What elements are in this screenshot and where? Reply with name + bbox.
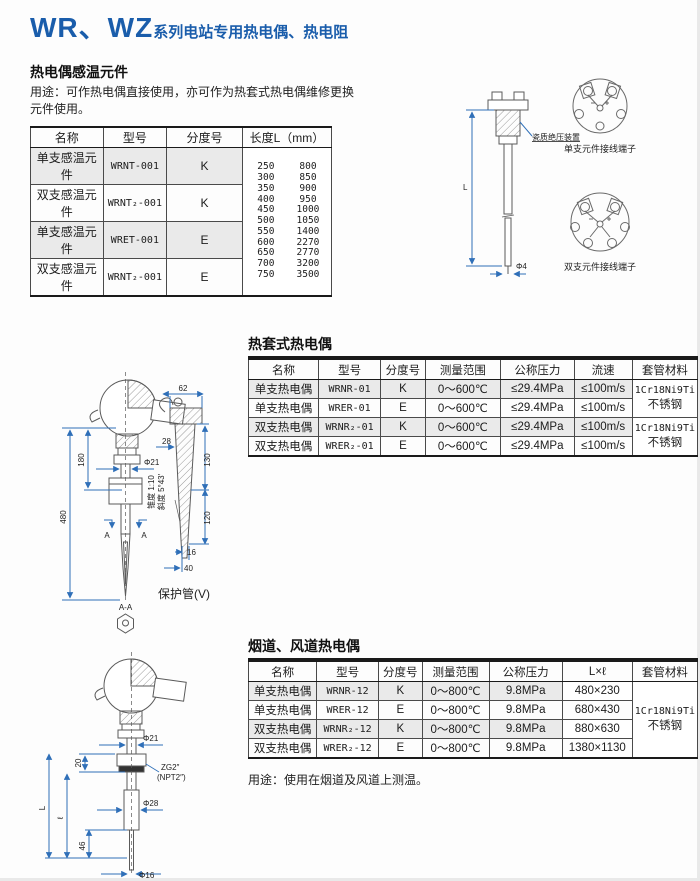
- series-code: WR、WZ: [30, 12, 153, 43]
- duct-thermocouple-diagram: Φ21 20 ZG2″ (NPT2″) L ℓ Φ28 46 Φ16: [35, 652, 240, 881]
- mark-AA: A-A: [119, 603, 133, 612]
- index-cell: K: [381, 380, 425, 399]
- index-cell: K: [379, 682, 422, 701]
- sheathed-thermocouple-table: 名称 型号 分度号 测量范围 公称压力 流速 套管材料 单支热电偶 WRNR-0…: [248, 358, 698, 457]
- table-row: 单支感温元件 WRNT-001 K 250800 300850 350900 4…: [31, 148, 332, 185]
- model-cell: WRNT₂-001: [103, 259, 167, 297]
- mark-A1: A: [104, 531, 110, 540]
- material-line2: 不锈钢: [635, 717, 695, 733]
- header-model: 型号: [319, 359, 381, 380]
- header-index: 分度号: [381, 359, 425, 380]
- name-cell: 单支热电偶: [249, 701, 317, 720]
- velocity-cell: ≤100m/s: [574, 380, 632, 399]
- header-model: 型号: [317, 661, 379, 682]
- range-cell: 0～600℃: [425, 418, 500, 437]
- header-size: L×ℓ: [562, 661, 632, 682]
- table-row: 双支热电偶 WRER₂-12 E 0～800℃ 9.8MPa 1380×1130: [249, 739, 698, 759]
- table-row: 单支热电偶 WRER-12 E 0～800℃ 9.8MPa 680×430: [249, 701, 698, 720]
- model-cell: WRNR-01: [319, 380, 381, 399]
- page-title: WR、WZ系列电站专用热电偶、热电阻: [30, 6, 348, 46]
- model-cell: WRNR₂-01: [319, 418, 381, 437]
- header-velocity: 流速: [574, 359, 632, 380]
- header-material: 套管材料: [632, 359, 697, 380]
- material-line1: 1Cr18Ni9Ti: [635, 706, 695, 717]
- dim-phi21: Φ21: [143, 734, 159, 743]
- range-cell: 0～600℃: [425, 437, 500, 457]
- index-cell: K: [381, 418, 425, 437]
- table-row: 双支热电偶 WRNR₂-01 K 0～600℃ ≤29.4MPa ≤100m/s…: [249, 418, 698, 437]
- model-cell: WRNR₂-12: [317, 720, 379, 739]
- material-line1: 1Cr18Ni9Ti: [635, 385, 695, 396]
- model-cell: WRER-01: [319, 399, 381, 418]
- name-cell: 单支感温元件: [31, 148, 104, 185]
- model-cell: WRNT₂-001: [103, 185, 167, 222]
- terminal-block-single: [573, 79, 627, 133]
- dim-phi28: Φ28: [143, 799, 159, 808]
- catalog-page: WR、WZ系列电站专用热电偶、热电阻 热电偶感温元件 用途：可作热电偶直接使用，…: [0, 0, 700, 881]
- section-detail: [118, 614, 134, 633]
- index-cell: E: [167, 222, 243, 259]
- duct-thermocouple-table: 名称 型号 分度号 测量范围 公称压力 L×ℓ 套管材料 单支热电偶 WRNR-…: [248, 660, 698, 759]
- range-cell: 0～800℃: [422, 720, 489, 739]
- velocity-cell: ≤100m/s: [574, 437, 632, 457]
- dim-28: 28: [162, 437, 171, 446]
- section-heading-sheathed: 热套式热电偶: [248, 334, 698, 358]
- header-pressure: 公称压力: [501, 359, 575, 380]
- dim-tip-label: Φ4: [516, 262, 527, 271]
- name-cell: 单支热电偶: [249, 380, 319, 399]
- index-cell: E: [381, 437, 425, 457]
- header-name: 名称: [249, 661, 317, 682]
- callout-line: [520, 122, 532, 136]
- terminal-block-double: [571, 193, 630, 251]
- dim-L-label: L: [463, 183, 468, 192]
- dim-46: 46: [78, 841, 87, 850]
- pressure-cell: ≤29.4MPa: [501, 437, 575, 457]
- duct-usage-note: 用途：使用在烟道及风道上测温。: [248, 771, 698, 788]
- name-cell: 双支热电偶: [249, 720, 317, 739]
- header-length: 长度L（mm）: [242, 127, 331, 148]
- table-row: 单支热电偶 WRER-01 E 0～600℃ ≤29.4MPa ≤100m/s: [249, 399, 698, 418]
- dim-20: 20: [74, 758, 83, 767]
- table-row: 单支热电偶 WRNR-12 K 0～800℃ 9.8MPa 480×230 1C…: [249, 682, 698, 701]
- range-cell: 0～600℃: [425, 380, 500, 399]
- pressure-cell: 9.8MPa: [489, 701, 562, 720]
- usage-paragraph: 用途：可作热电偶直接使用，亦可作为热套式热电偶维修更换 元件使用。: [30, 84, 360, 119]
- size-cell: 680×430: [562, 701, 632, 720]
- header-pressure: 公称压力: [489, 661, 562, 682]
- dim-phi16: Φ16: [139, 871, 155, 880]
- section-duct: 烟道、风道热电偶 名称 型号 分度号 测量范围 公称压力 L×ℓ 套管材料 单支…: [248, 636, 698, 788]
- dim-120: 120: [203, 511, 212, 525]
- index-cell: K: [167, 185, 243, 222]
- index-cell: E: [379, 739, 422, 759]
- thread-label-1: ZG2″: [161, 763, 180, 772]
- size-cell: 1380×1130: [562, 739, 632, 759]
- model-cell: WRET-001: [103, 222, 167, 259]
- dim-62: 62: [179, 384, 188, 393]
- range-cell: 0～800℃: [422, 739, 489, 759]
- dim-40: 40: [184, 564, 193, 573]
- index-cell: E: [381, 399, 425, 418]
- dim-L: L: [38, 805, 47, 810]
- mark-A2: A: [141, 531, 147, 540]
- pressure-cell: 9.8MPa: [489, 720, 562, 739]
- sheathed-thermocouple-diagram: 480 180 Φ21 A A A-A: [32, 372, 244, 634]
- size-cell: 880×630: [562, 720, 632, 739]
- series-description: 系列电站专用热电偶、热电阻: [153, 24, 348, 41]
- len: 900: [287, 184, 329, 195]
- terminal-single-label: 单支元件接线端子: [564, 143, 636, 154]
- index-cell: K: [167, 148, 243, 185]
- dim-l: ℓ: [56, 816, 65, 820]
- material-line2: 不锈钢: [635, 396, 695, 412]
- usage-line2: 元件使用。: [30, 101, 360, 118]
- taper-label: 锥度 1:10: [146, 475, 156, 509]
- material-line2: 不锈钢: [635, 434, 695, 450]
- length-grid: 250800 300850 350900 400950 4501000 5001…: [245, 162, 329, 281]
- pressure-cell: 9.8MPa: [489, 682, 562, 701]
- name-cell: 双支感温元件: [31, 185, 104, 222]
- header-index: 分度号: [379, 661, 422, 682]
- table-row: 双支热电偶 WRER₂-01 E 0～600℃ ≤29.4MPa ≤100m/s: [249, 437, 698, 457]
- usage-line1: 用途：可作热电偶直接使用，亦可作为热套式热电偶维修更换: [30, 84, 360, 101]
- name-cell: 单支热电偶: [249, 399, 319, 418]
- header-name: 名称: [249, 359, 319, 380]
- material-cell: 1Cr18Ni9Ti 不锈钢: [632, 418, 697, 457]
- name-cell: 双支热电偶: [249, 437, 319, 457]
- header-range: 测量范围: [425, 359, 500, 380]
- range-cell: 0～800℃: [422, 682, 489, 701]
- terminal-double-label: 双支元件接线端子: [564, 261, 636, 272]
- header-range: 测量范围: [422, 661, 489, 682]
- name-cell: 单支感温元件: [31, 222, 104, 259]
- model-cell: WRER-12: [317, 701, 379, 720]
- pressure-cell: ≤29.4MPa: [501, 399, 575, 418]
- pressure-cell: 9.8MPa: [489, 739, 562, 759]
- callout-label: 瓷质绝压装置: [532, 132, 580, 142]
- sensing-element-diagram: L Φ4 瓷质绝压装置 单支元件接线端子: [432, 62, 698, 290]
- table-header-row: 名称 型号 分度号 长度L（mm）: [31, 127, 332, 148]
- dim-16: 16: [187, 548, 196, 557]
- dimension-lines: [62, 428, 154, 600]
- velocity-cell: ≤100m/s: [574, 418, 632, 437]
- dim-130: 130: [203, 453, 212, 467]
- header-index: 分度号: [167, 127, 243, 148]
- index-cell: K: [379, 720, 422, 739]
- dim-phi21: Φ21: [144, 458, 160, 467]
- assembly-outline: [90, 372, 185, 600]
- len: 750: [245, 270, 287, 281]
- name-cell: 单支热电偶: [249, 682, 317, 701]
- name-cell: 双支感温元件: [31, 259, 104, 297]
- range-cell: 0～800℃: [422, 701, 489, 720]
- section-heading-sensing-element: 热电偶感温元件: [30, 62, 128, 82]
- protection-tube-label: 保护管(V): [158, 586, 210, 601]
- table-header-row: 名称 型号 分度号 测量范围 公称压力 流速 套管材料: [249, 359, 698, 380]
- header-name: 名称: [31, 127, 104, 148]
- header-material: 套管材料: [632, 661, 697, 682]
- velocity-cell: ≤100m/s: [574, 399, 632, 418]
- section-sheathed: 热套式热电偶 名称 型号 分度号 测量范围 公称压力 流速 套管材料 单支热电偶…: [248, 334, 698, 457]
- sensing-element-table: 名称 型号 分度号 长度L（mm） 单支感温元件 WRNT-001 K 2508…: [30, 126, 332, 297]
- size-cell: 480×230: [562, 682, 632, 701]
- model-cell: WRER₂-01: [319, 437, 381, 457]
- header-model: 型号: [103, 127, 167, 148]
- name-cell: 双支热电偶: [249, 418, 319, 437]
- name-cell: 双支热电偶: [249, 739, 317, 759]
- table-header-row: 名称 型号 分度号 测量范围 公称压力 L×ℓ 套管材料: [249, 661, 698, 682]
- material-cell: 1Cr18Ni9Ti 不锈钢: [632, 682, 697, 759]
- model-cell: WRER₂-12: [317, 739, 379, 759]
- table-row: 单支热电偶 WRNR-01 K 0～600℃ ≤29.4MPa ≤100m/s …: [249, 380, 698, 399]
- dim-480: 480: [59, 510, 68, 524]
- pressure-cell: ≤29.4MPa: [501, 380, 575, 399]
- table-row: 双支热电偶 WRNR₂-12 K 0～800℃ 9.8MPa 880×630: [249, 720, 698, 739]
- len: 350: [245, 184, 287, 195]
- material-line1: 1Cr18Ni9Ti: [635, 423, 695, 434]
- pressure-cell: ≤29.4MPa: [501, 418, 575, 437]
- model-cell: WRNR-12: [317, 682, 379, 701]
- thread-label-2: (NPT2″): [157, 773, 186, 782]
- range-cell: 0～600℃: [425, 399, 500, 418]
- len: 3500: [287, 270, 329, 281]
- model-cell: WRNT-001: [103, 148, 167, 185]
- index-cell: E: [167, 259, 243, 297]
- index-cell: E: [379, 701, 422, 720]
- material-cell: 1Cr18Ni9Ti 不锈钢: [632, 380, 697, 418]
- dim-180: 180: [77, 453, 86, 467]
- section-heading-duct: 烟道、风道热电偶: [248, 636, 698, 660]
- length-list-cell: 250800 300850 350900 400950 4501000 5001…: [242, 148, 331, 297]
- slope-label: 斜度 5°43′: [156, 473, 166, 510]
- probe-outline: [488, 92, 528, 274]
